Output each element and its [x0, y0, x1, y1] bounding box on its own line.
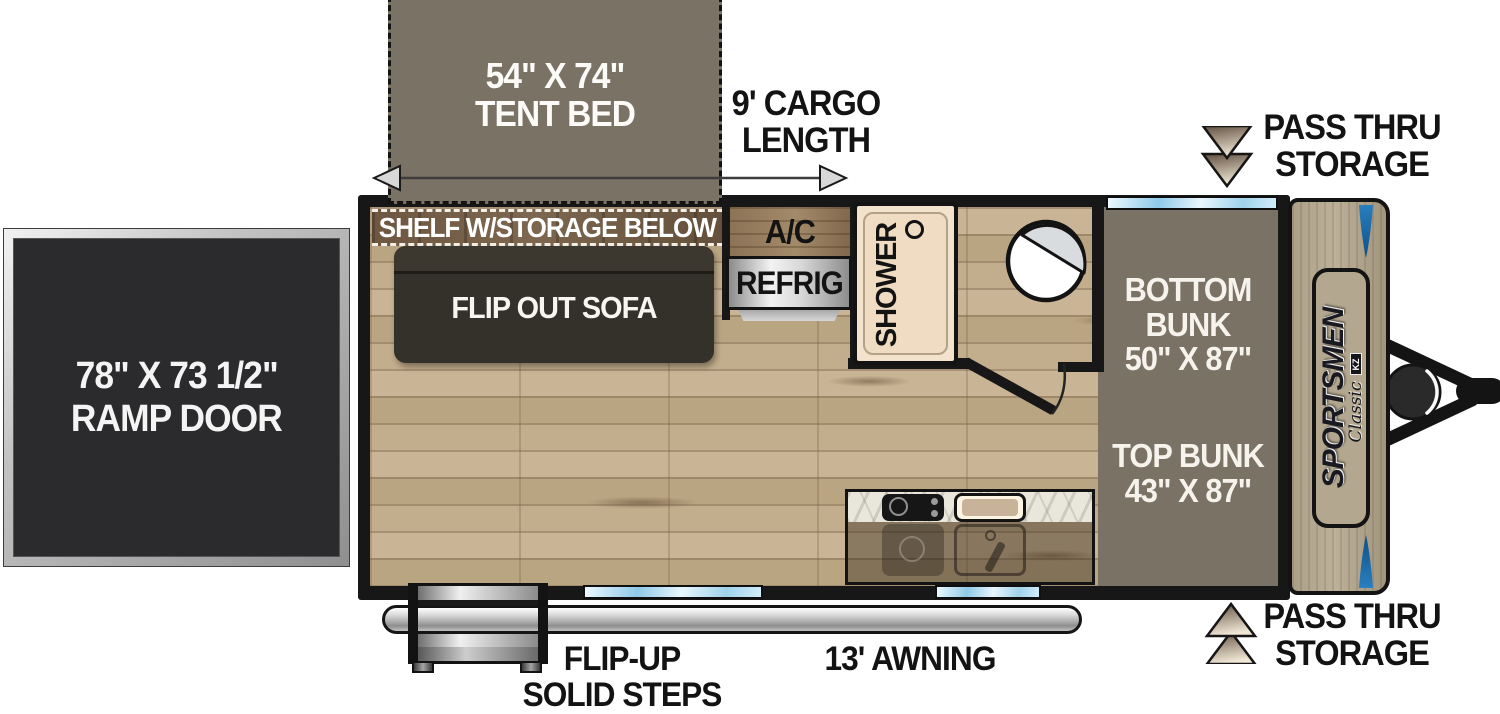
- sink-bowl: [962, 499, 1018, 516]
- shelf-with-storage: SHELF W/STORAGE BELOW: [372, 209, 723, 246]
- brand-maker: KZ: [1350, 354, 1362, 376]
- top-bunk-line1: TOP BUNK: [1104, 439, 1271, 474]
- bunk-area: BOTTOM BUNK 50" X 87" TOP BUNK 43" X 87": [1098, 207, 1278, 586]
- floorplan-canvas: 78" X 73 1/2" RAMP DOOR BOTTOM BUNK 50" …: [0, 0, 1500, 714]
- cooktop-knob-icon: [931, 510, 938, 517]
- tent-bed-text: TENT BED: [402, 95, 707, 133]
- cooktop-knob-icon: [931, 498, 938, 505]
- blue-accent-bottom-icon: [1358, 534, 1374, 588]
- cargo-length-line1: 9' CARGO: [713, 86, 899, 123]
- cooktop-icon: [882, 494, 944, 521]
- refrigerator-shadow: [736, 310, 842, 321]
- ramp-door-panel: 78" X 73 1/2" RAMP DOOR: [13, 238, 340, 557]
- awning-label: 13' AWNING: [800, 642, 1020, 678]
- cargo-length-line2: LENGTH: [713, 123, 899, 160]
- steps-line2: SOLID STEPS: [520, 678, 725, 714]
- pass-thru-bottom-line2: STORAGE: [1259, 636, 1445, 673]
- bathroom-door-swing-arc: [1040, 356, 1082, 420]
- refrigerator-label: REFRIG: [736, 265, 843, 302]
- ramp-door-size: 78" X 73 1/2": [75, 355, 277, 398]
- window-front-top: [1106, 196, 1278, 210]
- front-cap-panel: SPORTSMEN Classic KZ: [1288, 198, 1390, 595]
- step-foot: [412, 661, 434, 673]
- steps-label: FLIP-UP SOLID STEPS: [512, 642, 732, 713]
- cargo-length-arrow-icon: [360, 158, 860, 198]
- pass-thru-top-label: PASS THRU STORAGE: [1252, 110, 1452, 184]
- refrigerator: REFRIG: [726, 256, 852, 310]
- pass-thru-bottom-label: PASS THRU STORAGE: [1252, 599, 1452, 673]
- bottom-bunk-label: BOTTOM BUNK 50" X 87": [1098, 273, 1278, 377]
- pass-thru-bottom-line1: PASS THRU: [1259, 599, 1445, 636]
- step-tread: [418, 586, 538, 600]
- burner-ghost-icon: [899, 536, 925, 562]
- cargo-length-label: 9' CARGO LENGTH: [706, 86, 906, 160]
- shower-stall: SHOWER: [853, 202, 958, 365]
- ramp-door: 78" X 73 1/2" RAMP DOOR: [3, 228, 350, 567]
- steps-line1: FLIP-UP: [520, 642, 725, 678]
- ramp-door-label: RAMP DOOR: [71, 398, 282, 441]
- toilet-icon: [1000, 214, 1095, 309]
- flip-out-sofa: FLIP OUT SOFA: [394, 246, 714, 363]
- awning-label-text: 13' AWNING: [808, 642, 1013, 678]
- sofa-label: FLIP OUT SOFA: [394, 292, 714, 325]
- top-bunk-size: 43" X 87": [1104, 474, 1271, 509]
- cooktop-ghost-icon: [882, 524, 944, 576]
- blue-accent-top-icon: [1358, 205, 1374, 259]
- sofa-backrest: [394, 246, 714, 274]
- sink-drain-ghost-icon: [985, 530, 996, 541]
- sink-icon: [954, 493, 1026, 522]
- bottom-bunk-line2: BUNK: [1104, 308, 1271, 343]
- kitchen-counter: [845, 489, 1095, 585]
- ac-cabinet: A/C: [730, 207, 850, 258]
- tent-bed-size: 54" X 74": [402, 57, 707, 95]
- bottom-bunk-size: 50" X 87": [1104, 342, 1271, 377]
- step-riser: [418, 600, 538, 606]
- window-door-side-right: [935, 585, 1041, 599]
- pass-thru-top-line2: STORAGE: [1259, 147, 1445, 184]
- shower-label: SHOWER: [871, 210, 905, 360]
- bottom-bunk-line1: BOTTOM: [1104, 273, 1271, 308]
- brand-series: Classic: [1346, 382, 1366, 443]
- burner-icon: [889, 497, 908, 516]
- tent-bed-label: 54" X 74" TENT BED: [391, 57, 719, 133]
- shelf-label: SHELF W/STORAGE BELOW: [379, 212, 716, 244]
- window-door-side-left: [583, 585, 763, 599]
- sofa-label-text: FLIP OUT SOFA: [405, 292, 703, 325]
- faucet-ghost-icon: [984, 541, 1006, 573]
- ac-label: A/C: [765, 213, 815, 251]
- top-bunk-label: TOP BUNK 43" X 87": [1098, 439, 1278, 508]
- sink-ghost-icon: [954, 524, 1026, 576]
- pass-thru-top-line1: PASS THRU: [1259, 110, 1445, 147]
- brand-badge-text: SPORTSMEN Classic KZ: [1313, 273, 1369, 523]
- shower-drain-icon: [905, 220, 924, 239]
- pass-thru-top-arrow-icon: [1198, 126, 1256, 190]
- brand-badge: SPORTSMEN Classic KZ: [1312, 268, 1370, 528]
